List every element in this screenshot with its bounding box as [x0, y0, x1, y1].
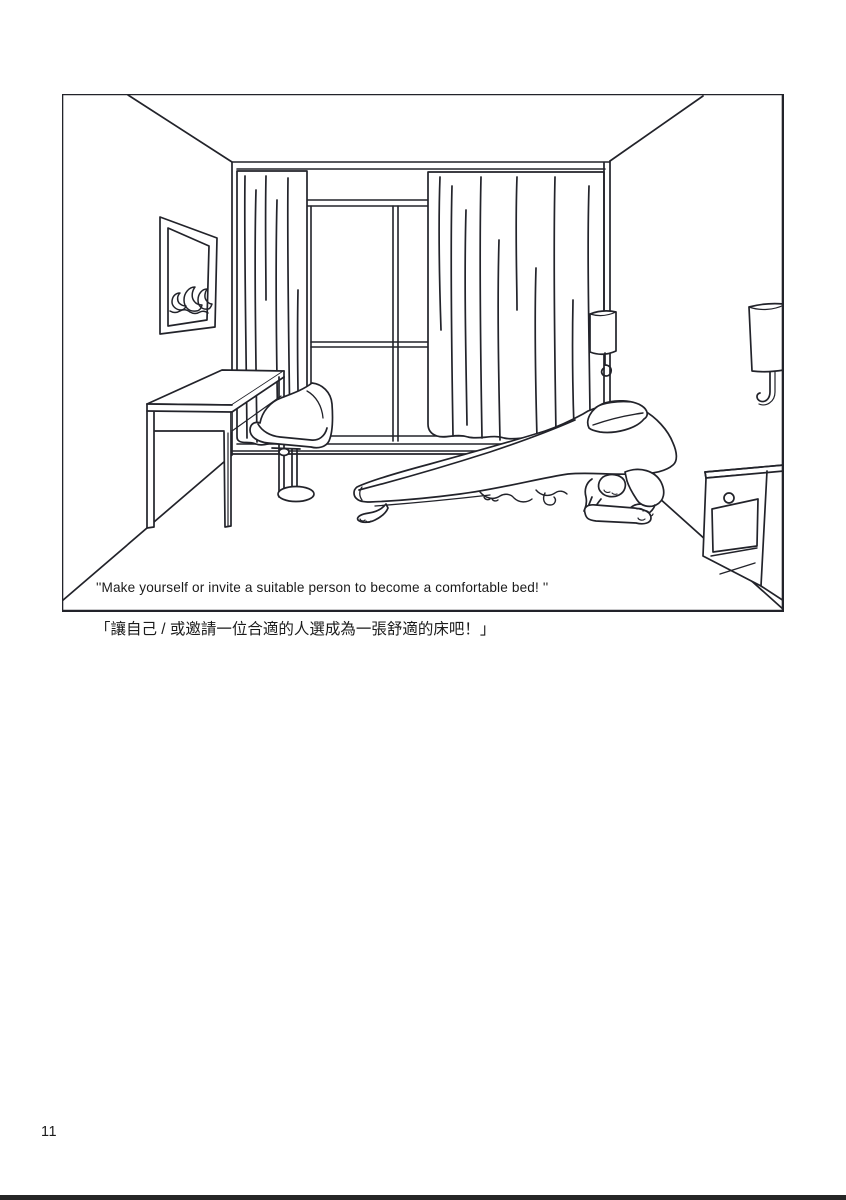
book-page: { "page": { "number": "11", "caption_en"… — [0, 0, 846, 1200]
room-walls — [62, 95, 784, 610]
caption-english: ''Make yourself or invite a suitable per… — [96, 580, 696, 595]
right-curtain — [428, 172, 604, 441]
nightstand — [703, 465, 784, 601]
wall-lamp — [749, 304, 784, 405]
supporting-foot — [358, 504, 388, 522]
page-bottom-edge — [0, 1195, 846, 1200]
caption-chinese: 「讓自己 / 或邀請一位合適的人選成為一張舒適的床吧！」 — [95, 617, 735, 639]
under-mattress-cloth — [480, 490, 567, 505]
room-illustration — [62, 94, 784, 612]
wave-picture-frame — [160, 217, 217, 334]
kneeling-figure — [584, 469, 664, 523]
page-number: 11 — [41, 1124, 57, 1140]
illustration-border — [62, 94, 783, 611]
